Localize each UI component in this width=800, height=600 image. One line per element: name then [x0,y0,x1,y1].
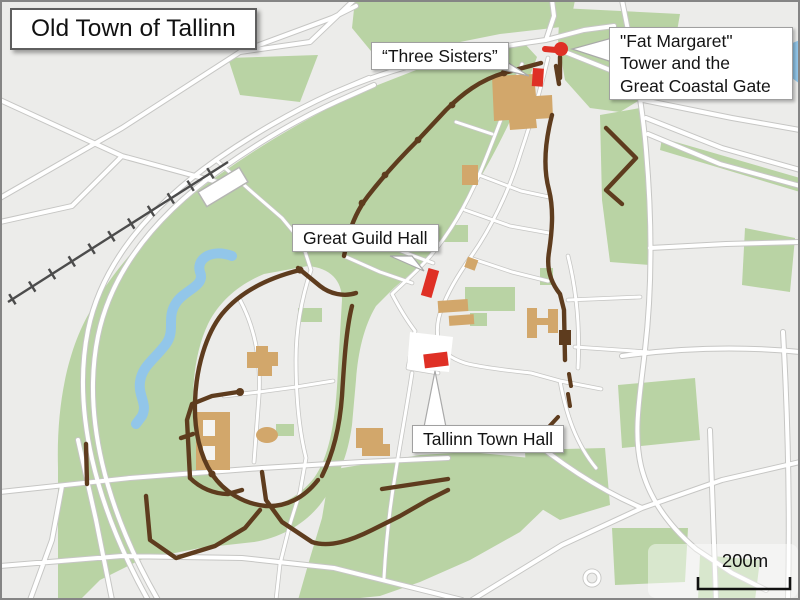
map-title: Old Town of Tallinn [10,8,257,50]
great-guild-hall-building [421,268,439,298]
three-sisters-building [532,68,544,87]
fat-margaret-line1: "Fat Margaret" [620,31,733,51]
label-town-hall: Tallinn Town Hall [412,425,564,453]
toompea-castle [196,412,230,470]
niguliste-church [356,428,390,456]
h-shaped-building [527,308,558,338]
fat-margaret-tower [554,42,568,56]
label-three-sisters: “Three Sisters” [371,42,509,70]
tallinn-old-town-map: Old Town of Tallinn “Three Sisters” "Fat… [0,0,800,600]
label-fat-margaret: "Fat Margaret" Tower and the Great Coast… [609,27,793,100]
fat-margaret-line3: Great Coastal Gate [620,76,771,96]
label-great-guild-hall: Great Guild Hall [292,224,439,252]
scale-bar-label: 200m [700,550,790,572]
town-hall-building [423,352,449,369]
fat-margaret-line2: Tower and the [620,53,730,73]
